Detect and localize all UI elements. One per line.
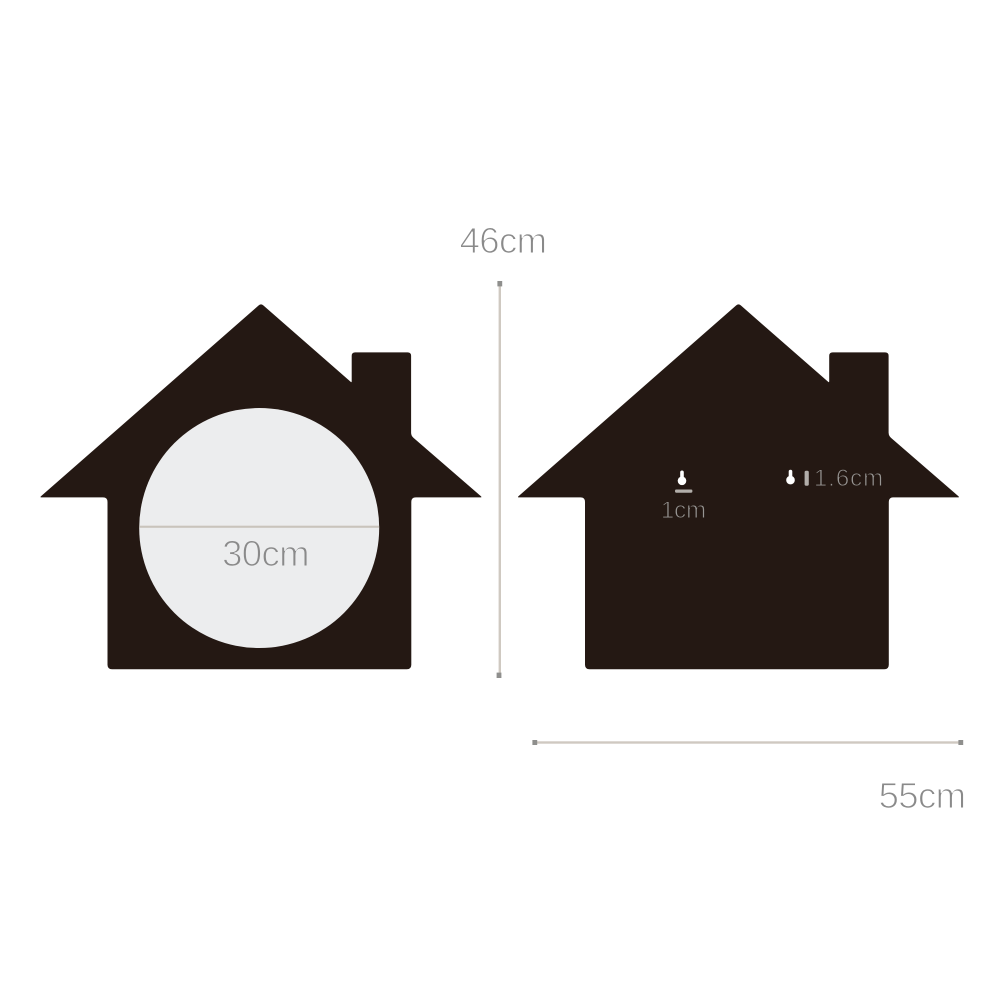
- svg-text:46cm: 46cm: [460, 220, 547, 261]
- svg-text:30cm: 30cm: [222, 533, 309, 574]
- svg-text:1cm: 1cm: [661, 497, 706, 524]
- svg-text:1.6cm: 1.6cm: [814, 465, 884, 492]
- svg-text:55cm: 55cm: [879, 775, 966, 816]
